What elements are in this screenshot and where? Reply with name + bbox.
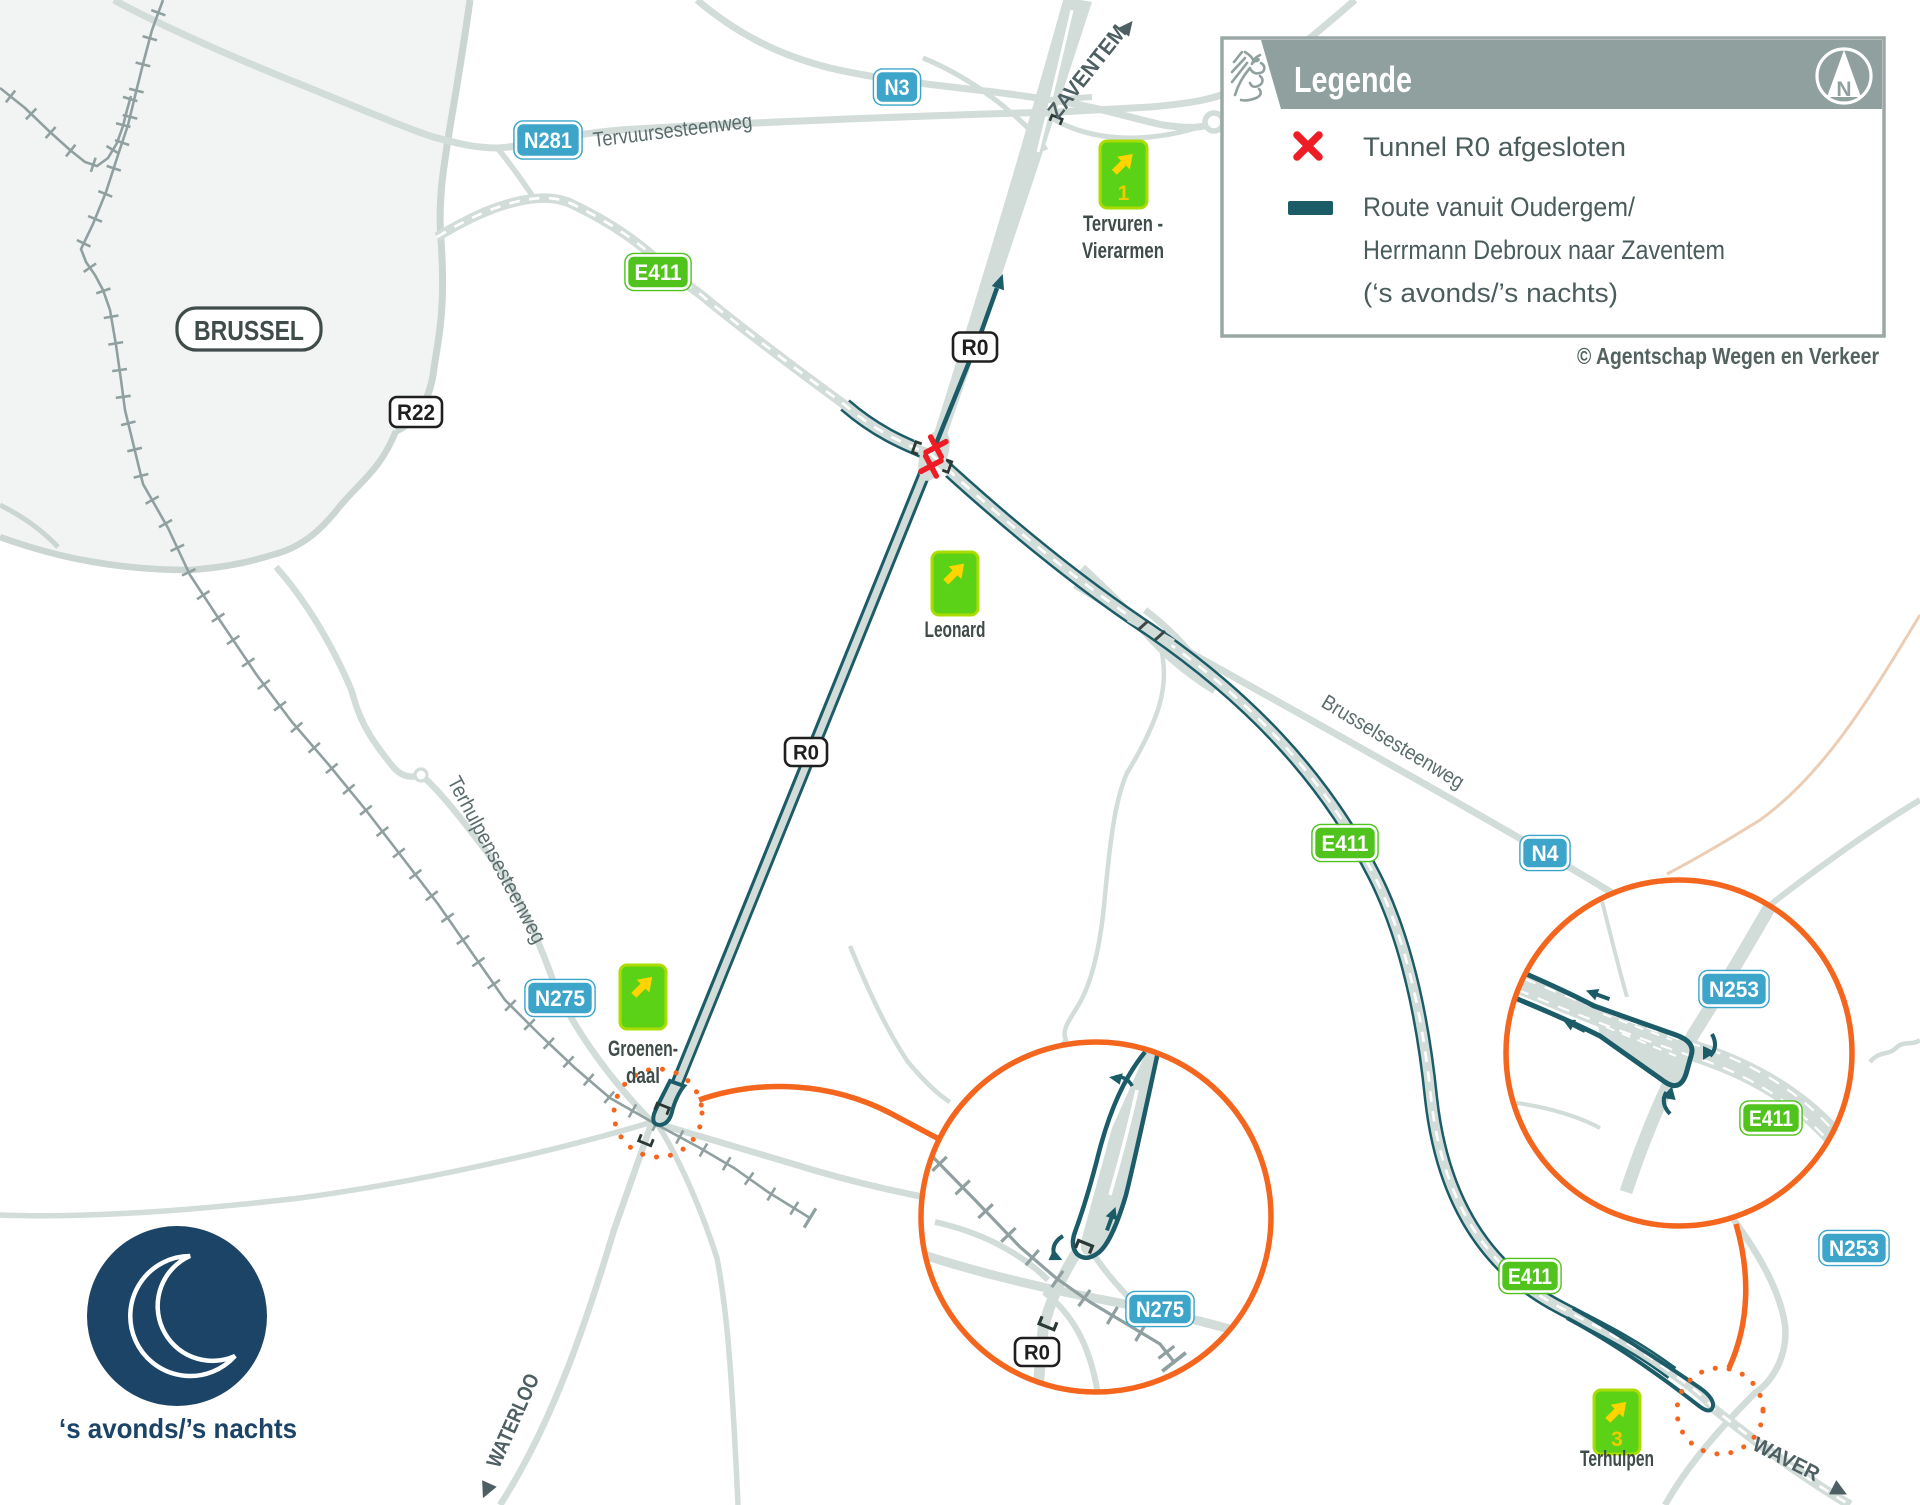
svg-text:N275: N275	[535, 986, 585, 1011]
svg-text:R0: R0	[962, 335, 989, 360]
svg-text:E411: E411	[1508, 1264, 1552, 1289]
svg-text:N4: N4	[1532, 841, 1560, 866]
svg-text:Tervuren -: Tervuren -	[1083, 211, 1163, 236]
svg-text:N253: N253	[1709, 977, 1759, 1002]
svg-text:Herrmann Debroux naar Zaventem: Herrmann Debroux naar Zaventem	[1363, 235, 1725, 265]
svg-text:Tunnel R0 afgesloten: Tunnel R0 afgesloten	[1363, 132, 1626, 162]
svg-text:(‘s avonds/’s nachts): (‘s avonds/’s nachts)	[1363, 278, 1618, 308]
svg-text:E411: E411	[1322, 831, 1369, 856]
svg-text:N3: N3	[885, 75, 910, 100]
svg-text:Route vanuit Oudergem/: Route vanuit Oudergem/	[1363, 192, 1635, 222]
svg-text:Legende: Legende	[1294, 59, 1412, 100]
svg-text:E411: E411	[1749, 1106, 1793, 1131]
svg-text:R22: R22	[397, 400, 435, 425]
svg-text:E411: E411	[635, 260, 682, 285]
svg-text:‘s avonds/’s nachts: ‘s avonds/’s nachts	[59, 1413, 297, 1444]
svg-text:N253: N253	[1829, 1236, 1879, 1261]
svg-text:R0: R0	[1024, 1342, 1050, 1365]
svg-text:N275: N275	[1136, 1297, 1184, 1322]
svg-text:Vierarmen: Vierarmen	[1082, 238, 1164, 263]
svg-text:R0: R0	[793, 742, 819, 765]
svg-text:© Agentschap Wegen en Verkeer: © Agentschap Wegen en Verkeer	[1577, 343, 1879, 369]
svg-text:daal: daal	[626, 1063, 660, 1088]
svg-text:Leonard: Leonard	[925, 617, 986, 642]
svg-text:BRUSSEL: BRUSSEL	[194, 315, 304, 346]
svg-text:1: 1	[1118, 182, 1130, 205]
svg-text:Groenen-: Groenen-	[608, 1036, 678, 1061]
svg-text:N281: N281	[524, 128, 572, 153]
svg-text:N: N	[1836, 78, 1851, 101]
svg-text:Terhulpen: Terhulpen	[1580, 1446, 1654, 1471]
